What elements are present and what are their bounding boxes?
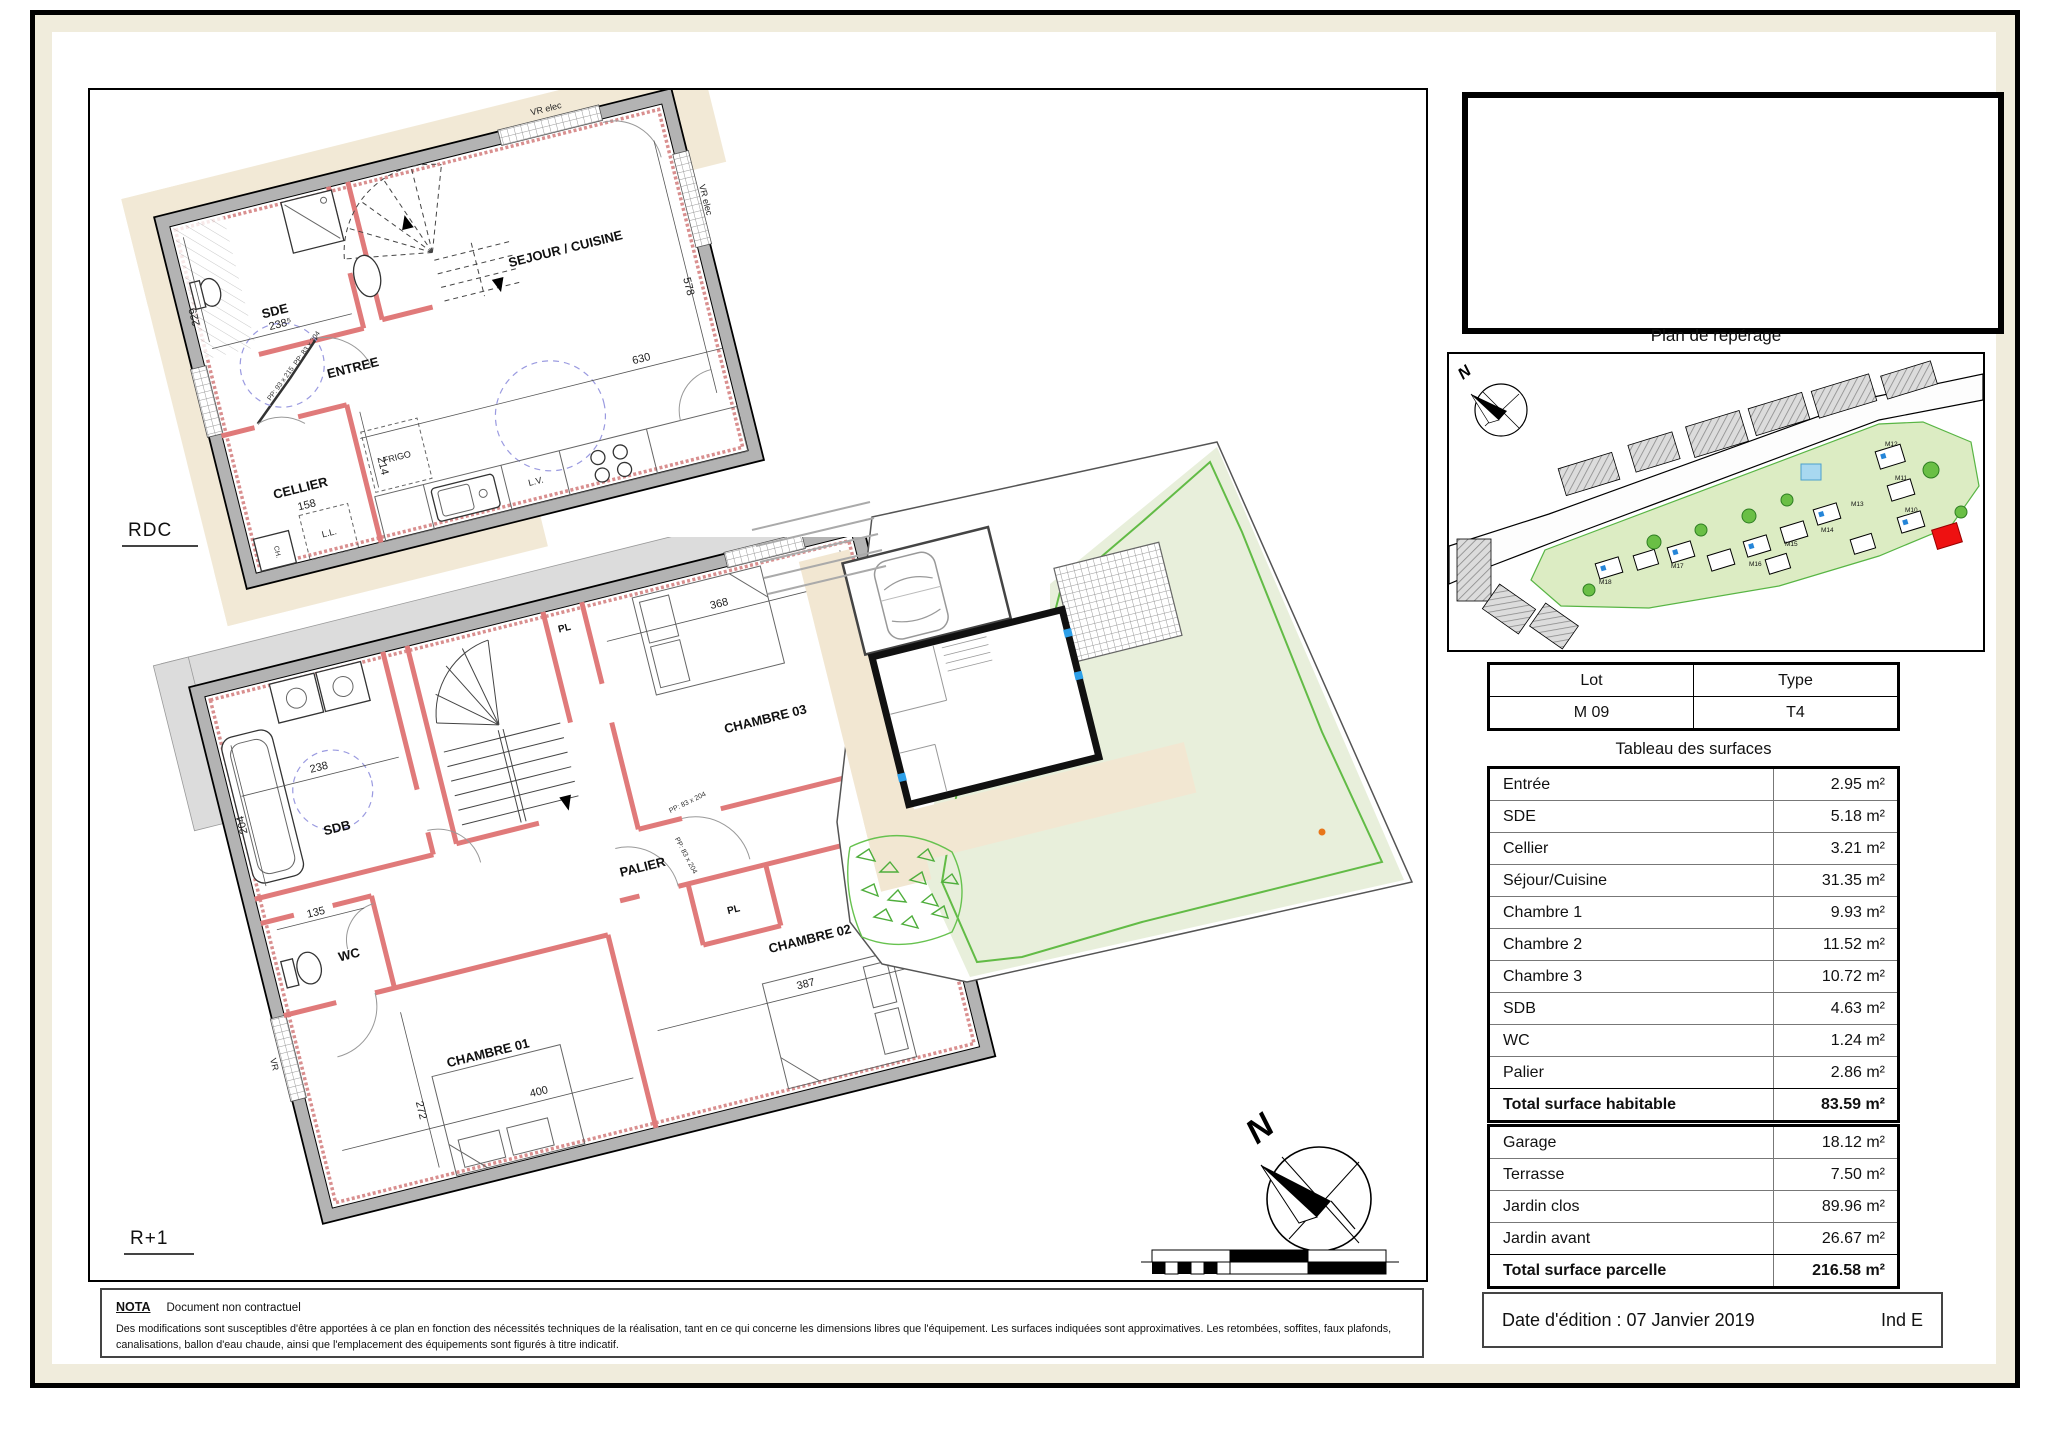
map-lot-m14: M14 <box>1821 527 1834 534</box>
map-lot-m10: M10 <box>1905 507 1918 514</box>
row-label: Séjour/Cuisine <box>1490 865 1774 896</box>
reperage-title: Plan de repérage <box>1447 326 1985 346</box>
total-label: Total surface habitable <box>1490 1089 1774 1120</box>
row-label: SDE <box>1490 801 1774 832</box>
total-value: 216.58 m² <box>1774 1255 1897 1286</box>
plans-panel: SDE 238⁵ 229 ENTREE CELLIER 158 214 SEJO… <box>88 88 1428 1282</box>
annex-total-row: Total surface parcelle216.58 m² <box>1490 1254 1897 1286</box>
row-value: 5.18 m² <box>1774 801 1897 832</box>
scale-bar: 0 1 2 3 <box>1137 1232 1417 1282</box>
row-label: Jardin avant <box>1490 1223 1774 1254</box>
scale-tick-3: 3 <box>1382 1281 1391 1282</box>
row-label: Chambre 2 <box>1490 929 1774 960</box>
scale-tick-2: 2 <box>1304 1281 1313 1282</box>
row-value: 1.24 m² <box>1774 1025 1897 1056</box>
map-pond <box>1801 464 1821 480</box>
logo-box <box>1462 92 2004 334</box>
row-value: 10.72 m² <box>1774 961 1897 992</box>
row-label: Entrée <box>1490 769 1774 800</box>
edition-ind: Ind E <box>1881 1310 1923 1331</box>
total-value: 83.59 m² <box>1774 1089 1897 1120</box>
site-marker-orange <box>1319 829 1326 836</box>
table-row: Chambre 310.72 m² <box>1490 960 1897 992</box>
table-row: Chambre 19.93 m² <box>1490 896 1897 928</box>
r1-floor-label: R+1 <box>124 1228 194 1255</box>
map-lot-m18: M18 <box>1599 579 1612 586</box>
surfaces-title: Tableau des surfaces <box>1487 740 1900 759</box>
row-label: Chambre 1 <box>1490 897 1774 928</box>
row-value: 11.52 m² <box>1774 929 1897 960</box>
table-row: SDE5.18 m² <box>1490 800 1897 832</box>
lot-header: Lot <box>1490 665 1694 696</box>
row-label: Chambre 3 <box>1490 961 1774 992</box>
reperage-map: N M18 M17 M16 M15 M14 M13 M12 M11 M10 <box>1449 354 1983 650</box>
table-row: Cellier3.21 m² <box>1490 832 1897 864</box>
row-value: 2.86 m² <box>1774 1057 1897 1088</box>
row-label: Garage <box>1490 1127 1774 1158</box>
nota-subtitle: Document non contractuel <box>167 1302 301 1314</box>
table-row: Chambre 211.52 m² <box>1490 928 1897 960</box>
row-value: 31.35 m² <box>1774 865 1897 896</box>
total-label: Total surface parcelle <box>1490 1255 1774 1286</box>
map-lot-m13: M13 <box>1851 501 1864 508</box>
type-value: T4 <box>1694 697 1897 728</box>
scale-tick-1: 1 <box>1226 1281 1235 1282</box>
surfaces-total-row: Total surface habitable83.59 m² <box>1490 1088 1897 1120</box>
compass-n-label: N <box>1239 1107 1283 1151</box>
row-label: Palier <box>1490 1057 1774 1088</box>
nota-title: NOTA <box>116 1300 151 1314</box>
table-row: Séjour/Cuisine31.35 m² <box>1490 864 1897 896</box>
table-row: Garage18.12 m² <box>1490 1127 1897 1158</box>
nota-box: NOTADocument non contractuel Des modific… <box>100 1288 1424 1358</box>
table-row: SDB4.63 m² <box>1490 992 1897 1024</box>
table-row: Jardin clos89.96 m² <box>1490 1190 1897 1222</box>
lot-type-table: Lot Type M 09 T4 <box>1487 662 1900 731</box>
row-label: WC <box>1490 1025 1774 1056</box>
map-lot-m17: M17 <box>1671 563 1684 570</box>
r1-label-vr3: VR <box>268 1057 281 1072</box>
row-value: 4.63 m² <box>1774 993 1897 1024</box>
table-row: Entrée2.95 m² <box>1490 769 1897 800</box>
row-label: Jardin clos <box>1490 1191 1774 1222</box>
table-row: WC1.24 m² <box>1490 1024 1897 1056</box>
table-row: Palier2.86 m² <box>1490 1056 1897 1088</box>
annex-surfaces-table: Garage18.12 m² Terrasse7.50 m² Jardin cl… <box>1487 1124 1900 1289</box>
table-row: Terrasse7.50 m² <box>1490 1158 1897 1190</box>
type-header: Type <box>1694 665 1897 696</box>
row-value: 9.93 m² <box>1774 897 1897 928</box>
surfaces-table: Entrée2.95 m² SDE5.18 m² Cellier3.21 m² … <box>1487 766 1900 1123</box>
row-value: 26.67 m² <box>1774 1223 1897 1254</box>
edition-date: Date d'édition : 07 Janvier 2019 <box>1502 1310 1755 1331</box>
reperage-map-box: N M18 M17 M16 M15 M14 M13 M12 M11 M10 <box>1447 352 1985 652</box>
row-value: 2.95 m² <box>1774 769 1897 800</box>
scale-tick-0: 0 <box>1148 1281 1157 1282</box>
row-label: SDB <box>1490 993 1774 1024</box>
map-compass-n: N <box>1455 362 1475 383</box>
row-value: 7.50 m² <box>1774 1159 1897 1190</box>
map-lot-m16: M16 <box>1749 561 1762 568</box>
edition-box: Date d'édition : 07 Janvier 2019 Ind E <box>1482 1292 1943 1348</box>
map-lot-m11: M11 <box>1895 475 1908 482</box>
site-plan <box>622 402 1428 1022</box>
row-label: Cellier <box>1490 833 1774 864</box>
map-lot-m15: M15 <box>1785 541 1798 548</box>
row-value: 3.21 m² <box>1774 833 1897 864</box>
nota-body: Des modifications sont susceptibles d'êt… <box>116 1322 1408 1353</box>
table-row: Jardin avant26.67 m² <box>1490 1222 1897 1254</box>
map-compass: N <box>1455 362 1527 436</box>
lot-value: M 09 <box>1490 697 1694 728</box>
map-lot-m12: M12 <box>1885 441 1898 448</box>
row-value: 18.12 m² <box>1774 1127 1897 1158</box>
row-label: Terrasse <box>1490 1159 1774 1190</box>
row-value: 89.96 m² <box>1774 1191 1897 1222</box>
